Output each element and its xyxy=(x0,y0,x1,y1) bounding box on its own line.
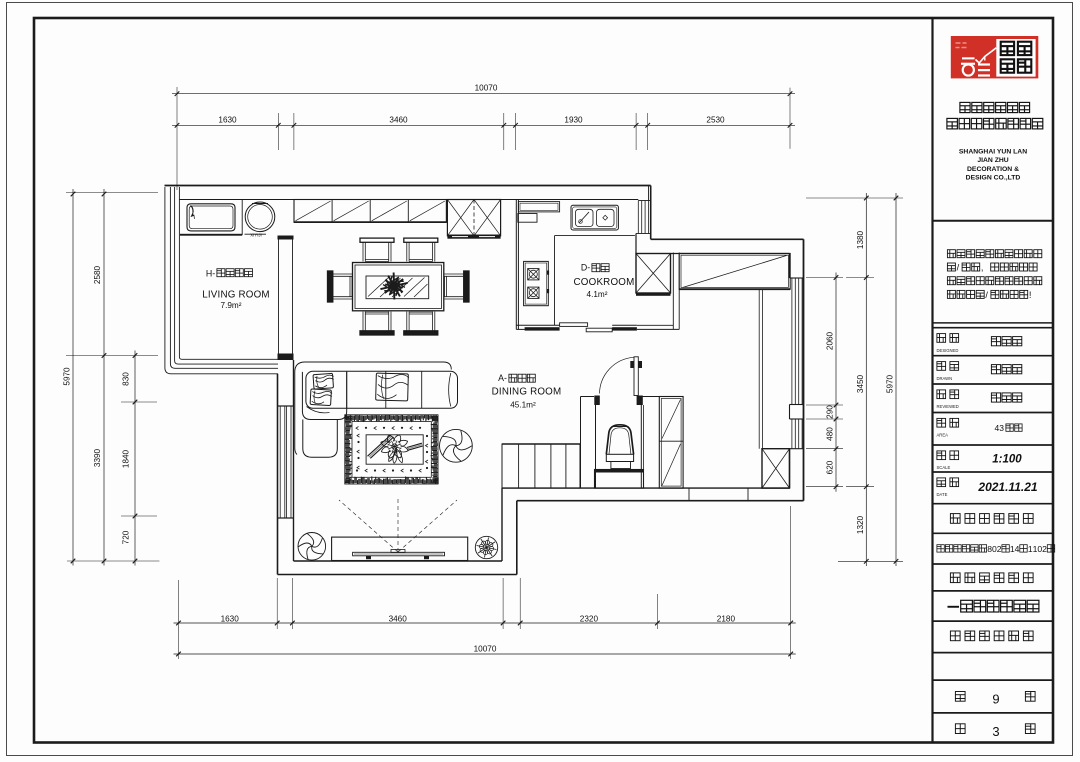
svg-text:!: ! xyxy=(1029,290,1032,300)
svg-text:JIAN ZHU: JIAN ZHU xyxy=(977,157,1008,164)
svg-text:45.1m²: 45.1m² xyxy=(510,401,536,410)
svg-text:7.9m²: 7.9m² xyxy=(221,301,242,310)
svg-text:1320: 1320 xyxy=(856,515,865,534)
svg-text:SCALE: SCALE xyxy=(937,465,951,470)
svg-text:3450: 3450 xyxy=(856,374,865,393)
svg-text:2060: 2060 xyxy=(826,331,835,350)
svg-text:290: 290 xyxy=(826,405,835,419)
svg-text:4.1m²: 4.1m² xyxy=(587,290,608,299)
svg-text:1630: 1630 xyxy=(218,116,237,125)
svg-text:H-: H- xyxy=(206,269,215,279)
svg-text:1630: 1630 xyxy=(221,614,240,623)
svg-text:1930: 1930 xyxy=(564,116,583,125)
svg-text:AREA: AREA xyxy=(937,433,949,438)
svg-text:720: 720 xyxy=(122,530,131,544)
svg-text:10070: 10070 xyxy=(475,83,498,92)
svg-text:SHANGHAI YUN LAN: SHANGHAI YUN LAN xyxy=(959,149,1027,156)
svg-text:43: 43 xyxy=(995,423,1005,433)
svg-text:A-: A- xyxy=(498,373,507,383)
svg-text:2021.11.21: 2021.11.21 xyxy=(977,480,1037,494)
svg-text:/: / xyxy=(957,263,960,273)
svg-text:620: 620 xyxy=(826,460,835,474)
svg-text:D-: D- xyxy=(581,262,590,272)
svg-text:5970: 5970 xyxy=(63,367,72,386)
svg-text:2180: 2180 xyxy=(717,614,736,623)
svg-text:DRAWN: DRAWN xyxy=(937,376,953,381)
svg-text:3460: 3460 xyxy=(389,614,408,623)
svg-text:4: 4 xyxy=(1015,544,1020,554)
svg-text:COOKROOM: COOKROOM xyxy=(574,277,635,288)
svg-text:DESIGNED: DESIGNED xyxy=(937,348,959,353)
svg-text:10070: 10070 xyxy=(474,645,497,654)
svg-text:DATE: DATE xyxy=(937,492,948,497)
svg-text:9: 9 xyxy=(992,692,999,707)
svg-text:/: / xyxy=(985,290,988,300)
svg-text:3: 3 xyxy=(992,724,999,739)
svg-text:,: , xyxy=(981,263,984,273)
svg-text:1380: 1380 xyxy=(856,230,865,249)
svg-text:5970: 5970 xyxy=(885,374,894,393)
svg-text:2320: 2320 xyxy=(580,614,599,623)
svg-text:2: 2 xyxy=(1042,544,1047,554)
svg-text:XIYIJI: XIYIJI xyxy=(250,233,261,238)
svg-text:1840: 1840 xyxy=(122,449,131,468)
svg-text:480: 480 xyxy=(826,427,835,441)
svg-text:2: 2 xyxy=(997,544,1002,554)
svg-text:DECORATION &: DECORATION & xyxy=(967,166,1019,173)
svg-text:LIVING ROOM: LIVING ROOM xyxy=(202,290,270,301)
svg-text:DESIGN CO.,LTD: DESIGN CO.,LTD xyxy=(966,175,1021,182)
svg-text:DINING ROOM: DINING ROOM xyxy=(492,387,562,398)
svg-text:REVIEWED: REVIEWED xyxy=(937,404,959,409)
svg-text:3390: 3390 xyxy=(93,448,102,467)
svg-text:3460: 3460 xyxy=(389,116,408,125)
svg-text:2580: 2580 xyxy=(93,265,102,284)
svg-text:830: 830 xyxy=(122,372,131,386)
svg-text:1:100: 1:100 xyxy=(992,454,1022,466)
svg-text:2530: 2530 xyxy=(706,116,725,125)
